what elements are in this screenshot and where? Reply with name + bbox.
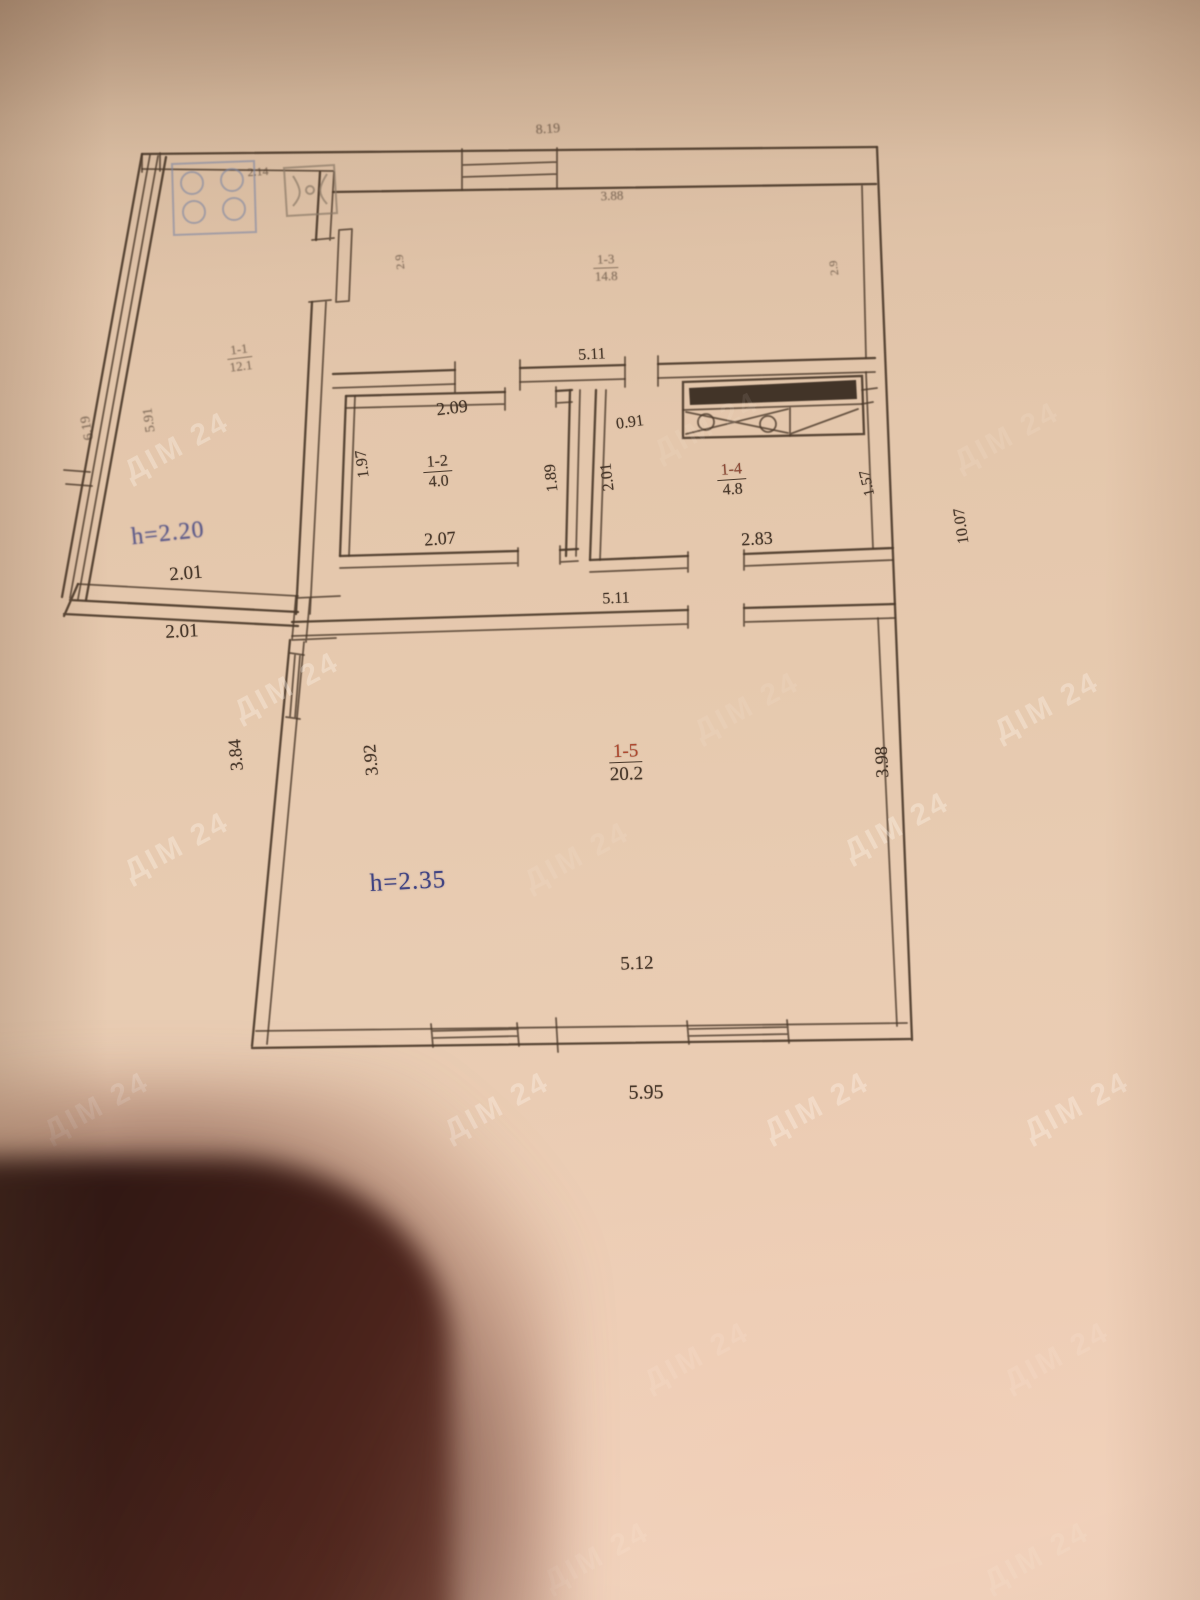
room-label-1-5: 1-5 20.2 [609,740,644,786]
room-id: 1-5 [609,740,643,763]
dim-room13-right: 2.9 [826,260,843,277]
dim-room14-left: 2.01 [597,462,618,492]
room-label-1-3: 1-3 14.8 [593,252,619,284]
room-label-1-4: 1-4 4.8 [716,460,748,500]
dim-room15-bottom-outer: 5.95 [628,1081,663,1105]
height-label-room15: h=2.35 [369,866,447,898]
floor-plan-photo: 8.19 3.88 2.14 6.19 5.91 1-1 12.1 h=2.20… [0,0,1200,1600]
dim-room12-right: 1.89 [542,463,563,493]
dim-room13-top: 3.88 [600,188,623,205]
dim-room13-left: 2.9 [392,254,409,271]
window-symbol [462,148,557,190]
dim-room13-bottom: 5.11 [578,345,606,364]
room-label-1-2: 1-2 4.0 [422,452,454,492]
dim-annex-left-inner: 5.91 [140,407,159,433]
dim-room15-left-outer: 3.84 [224,738,248,771]
room-area: 20.2 [609,762,643,785]
sink-icon [284,165,337,216]
dim-room12-top: 2.09 [435,396,469,421]
dim-room15-left-inner: 3.92 [359,743,383,776]
dim-top-overall: 8.19 [535,121,561,139]
stove-icon [172,161,256,235]
dim-room14-bottom: 2.83 [741,528,774,551]
room-label-1-1: 1-1 12.1 [226,341,255,375]
dim-hall-width: 0.91 [615,412,645,434]
room-area: 14.8 [593,268,619,284]
room-area: 12.1 [227,356,254,375]
room-area: 4.8 [717,479,748,500]
room-id: 1-2 [422,452,453,473]
dim-room15-top: 5.11 [602,590,630,609]
dim-room15-right: 3.98 [871,746,894,779]
dim-kitchen-bottom-inner: 2.01 [168,562,203,587]
room-area: 4.0 [423,471,454,492]
dim-kitchen-bottom-outer: 2.01 [165,620,199,644]
room-id: 1-3 [593,252,619,268]
walls [62,147,912,1052]
dim-kitchen-top: 2.14 [247,164,269,180]
dim-room15-bottom-inner: 5.12 [620,952,654,975]
room-id: 1-4 [716,460,747,481]
finger-shadow [0,1158,450,1600]
dim-room12-bottom: 2.07 [424,527,457,550]
dim-room12-left: 1.97 [352,449,373,479]
window-symbol [336,229,352,302]
bathtub-icon [683,376,877,438]
